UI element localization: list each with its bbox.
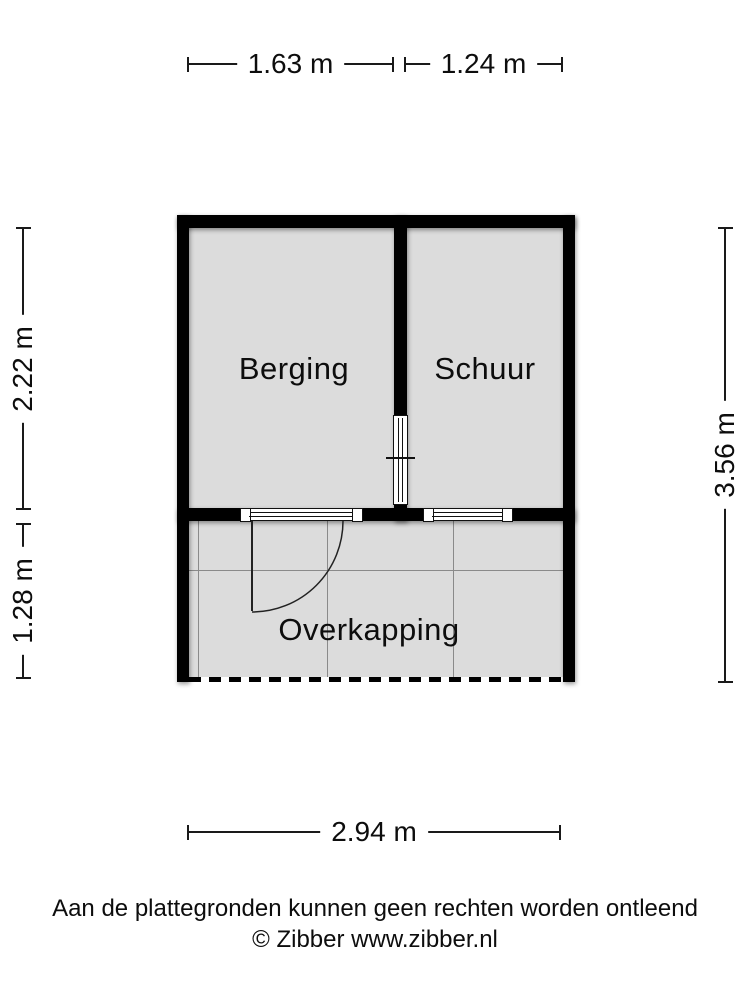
dimension-tick: [16, 677, 31, 679]
dimension-tick: [187, 825, 189, 840]
dimension-tick: [718, 681, 733, 683]
floor-fill-overkapping: [189, 521, 563, 677]
room-label-overkapping: Overkapping: [278, 612, 459, 648]
wall-right: [563, 215, 575, 682]
dimension-tick: [718, 227, 733, 229]
dimension-left-lower: 1.28 m: [22, 524, 24, 678]
dimension-tick: [404, 57, 406, 72]
window-interior-tick: [386, 457, 415, 459]
dimension-tick: [16, 523, 31, 525]
dimension-top-left: 1.63 m: [188, 63, 393, 65]
dimension-label-top-left: 1.63 m: [237, 48, 345, 80]
door-swing-arc: [252, 521, 343, 612]
dashed-edge-line: [189, 677, 563, 682]
dimension-tick: [16, 508, 31, 510]
window-right: [423, 508, 512, 521]
dimension-tick: [187, 57, 189, 72]
wall-middle: [177, 508, 575, 521]
footer-disclaimer: Aan de plattegronden kunnen geen rechten…: [0, 893, 750, 924]
wall-top: [177, 215, 575, 228]
footer-copyright: © Zibber www.zibber.nl: [0, 924, 750, 955]
dimension-right: 3.56 m: [724, 228, 726, 682]
window-cap: [502, 508, 513, 522]
wall-left: [177, 215, 189, 682]
dimension-label-right: 3.56 m: [709, 401, 741, 509]
dimension-label-left-lower: 1.28 m: [7, 547, 39, 655]
dimension-tick: [561, 57, 563, 72]
dimension-left-upper: 2.22 m: [22, 228, 24, 509]
grid-line: [189, 570, 563, 571]
window-cap: [352, 508, 363, 522]
dimension-tick: [392, 57, 394, 72]
dimension-label-top-right: 1.24 m: [430, 48, 538, 80]
dimension-label-left-upper: 2.22 m: [7, 315, 39, 423]
dimension-tick: [559, 825, 561, 840]
dimension-tick: [16, 227, 31, 229]
room-label-schuur: Schuur: [434, 351, 535, 387]
dimension-label-bottom: 2.94 m: [320, 816, 428, 848]
footer: Aan de plattegronden kunnen geen rechten…: [0, 893, 750, 955]
grid-line: [453, 521, 454, 677]
window-interior: [393, 415, 408, 505]
dimension-bottom: 2.94 m: [188, 831, 560, 833]
dimension-top-right: 1.24 m: [405, 63, 562, 65]
window-cap: [240, 508, 251, 522]
window-cap: [423, 508, 434, 522]
grid-line: [198, 521, 199, 677]
room-label-berging: Berging: [239, 351, 349, 387]
window-left: [240, 508, 362, 521]
